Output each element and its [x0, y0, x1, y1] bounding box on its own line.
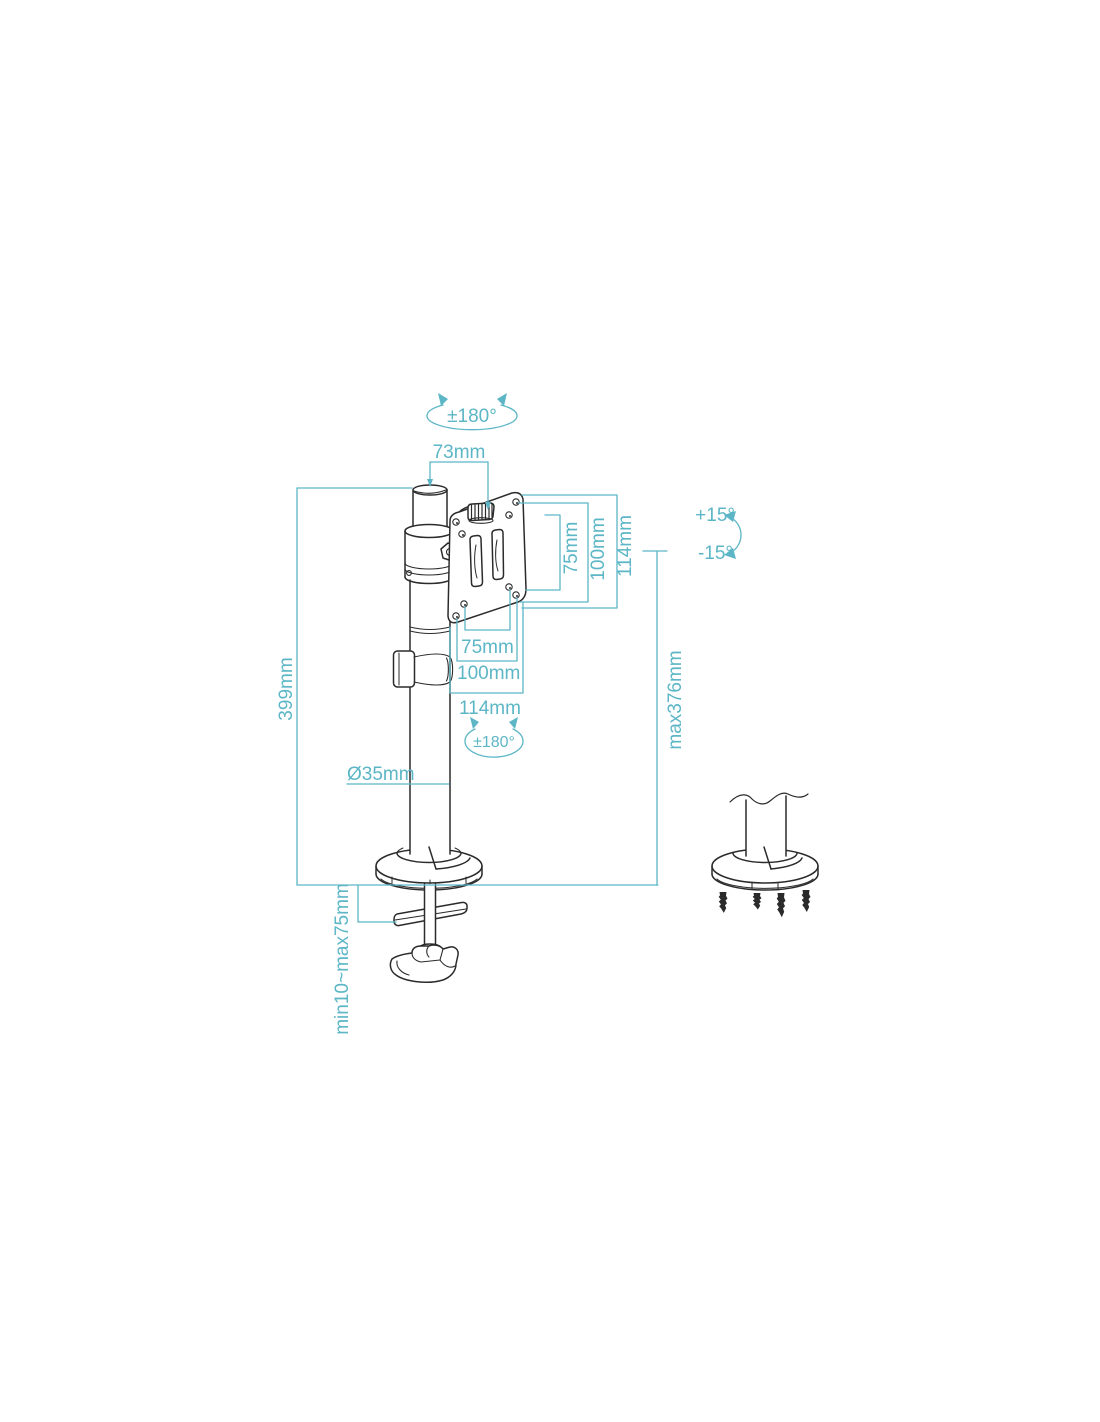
dim-rotation-top: ±180° — [427, 393, 517, 430]
vesa-75-vertical-label: 75mm — [561, 522, 582, 575]
pole-diameter-label: Ø35mm — [347, 764, 415, 785]
dimension-line — [358, 885, 396, 922]
collar-top — [405, 525, 453, 538]
grommet-pole-fill — [746, 800, 786, 855]
vesa-slot-left — [470, 536, 483, 587]
vesa-100-horizontal-label: 100mm — [457, 663, 520, 684]
rotation-top-label: ±180° — [447, 406, 497, 427]
cable-clip-box — [394, 651, 415, 687]
dim-73mm-label: 73mm — [433, 442, 486, 463]
dim-vesa-vertical-75: 75mm — [526, 515, 582, 590]
dim-rotation-mid: ±180° — [465, 717, 523, 757]
grommet-screws — [719, 890, 811, 917]
vesa-slot-right — [492, 530, 504, 580]
dim-clamp-range: min10~max75mm — [332, 883, 396, 1035]
clamp-foot — [390, 945, 458, 982]
screw-icon — [777, 893, 786, 917]
desk-base-drawing — [376, 849, 482, 890]
tilt-up-label: +15° — [695, 505, 735, 526]
clamp-rod-fill — [425, 884, 436, 948]
rotation-arrow-right-icon — [497, 393, 507, 406]
grommet-pole-torn-edge — [730, 793, 808, 804]
max-height-label: max376mm — [665, 650, 686, 749]
dimension-line — [526, 515, 560, 590]
rotation-arrow-left-icon — [438, 393, 448, 406]
vesa-114-vertical-label: 114mm — [615, 515, 636, 577]
clamp-range-label: min10~max75mm — [332, 883, 353, 1035]
vesa-plate-drawing — [448, 493, 526, 623]
tilt-down-label: -15° — [698, 543, 733, 564]
vesa-75-horizontal-label: 75mm — [461, 637, 514, 658]
dimension-line — [643, 551, 667, 885]
grommet-base-drawing — [712, 793, 818, 917]
desk-clamp-drawing — [390, 884, 467, 982]
screw-icon — [802, 890, 811, 912]
screw-icon — [719, 892, 728, 913]
vesa-100-vertical-label: 100mm — [588, 517, 609, 580]
pole-body-fill — [410, 580, 450, 854]
screw-icon — [753, 893, 762, 910]
diagram-page: ±180° 73mm 75mm 100mm 114mm +15° — [0, 0, 1100, 1422]
pole-height-label: 399mm — [276, 657, 297, 720]
rotation-mid-label: ±180° — [473, 734, 515, 751]
vesa-114-horizontal-label: 114mm — [459, 698, 521, 719]
dim-tilt: +15° -15° — [695, 505, 741, 564]
mount-diagram-svg: ±180° 73mm 75mm 100mm 114mm +15° — [0, 0, 1100, 1422]
dim-pole-height: 399mm — [276, 488, 412, 885]
dimension-annotations: ±180° 73mm 75mm 100mm 114mm +15° — [276, 393, 741, 1035]
dim-max-height: max376mm — [643, 551, 686, 885]
